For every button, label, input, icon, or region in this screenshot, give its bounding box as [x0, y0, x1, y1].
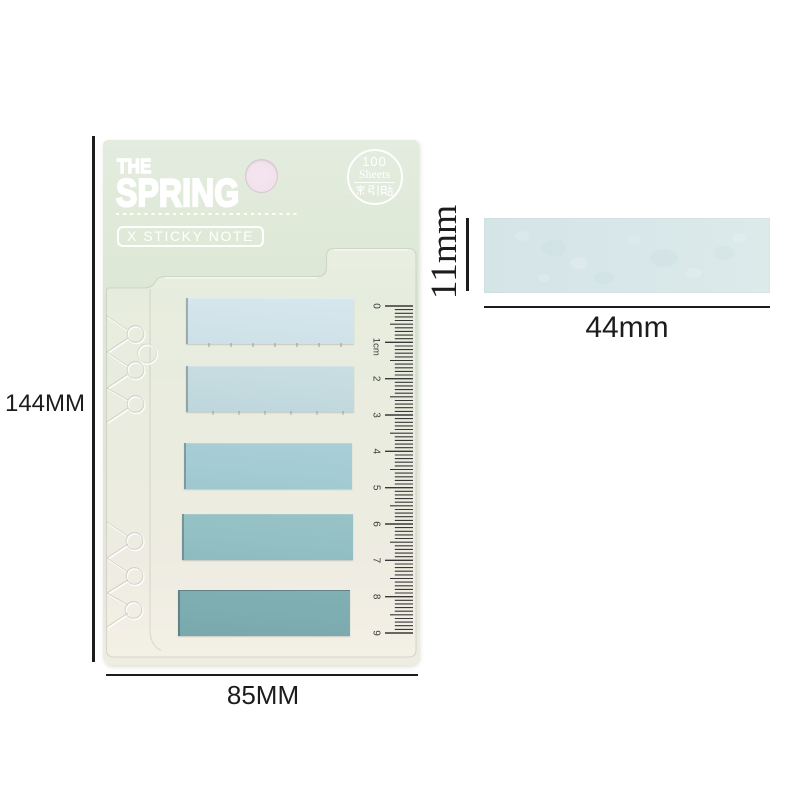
svg-text:7: 7: [370, 558, 381, 564]
svg-text:9: 9: [370, 630, 381, 636]
svg-text:2: 2: [370, 376, 381, 382]
svg-text:5: 5: [370, 485, 381, 491]
svg-text:3: 3: [370, 412, 381, 418]
svg-text:4: 4: [370, 449, 381, 455]
svg-text:8: 8: [370, 594, 381, 600]
svg-text:6: 6: [370, 521, 381, 527]
svg-text:0: 0: [370, 303, 381, 309]
svg-text:1cm: 1cm: [370, 338, 381, 356]
